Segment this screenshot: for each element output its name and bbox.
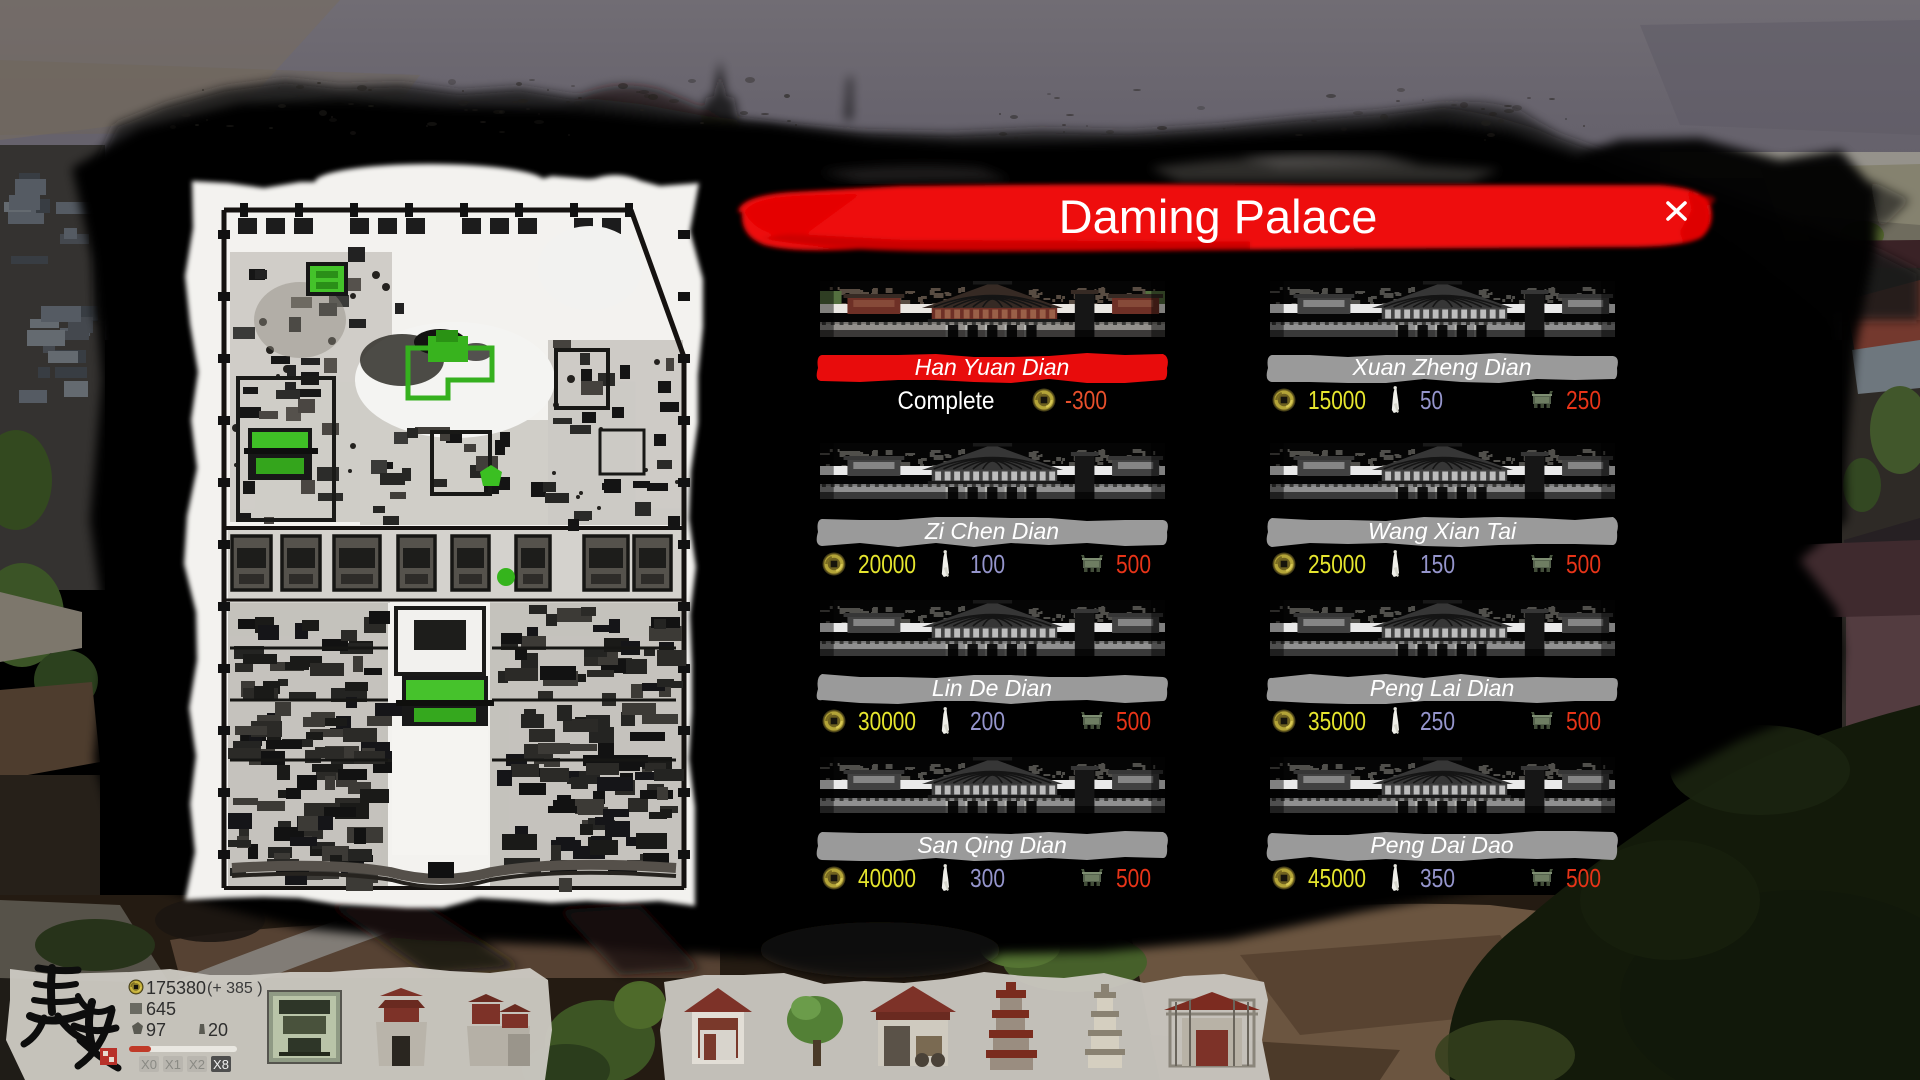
svg-text:500: 500 <box>1116 863 1151 893</box>
svg-text:100: 100 <box>970 549 1005 579</box>
svg-text:97: 97 <box>146 1020 166 1040</box>
svg-text:X1: X1 <box>165 1057 181 1072</box>
svg-text:350: 350 <box>1420 863 1455 893</box>
svg-text:Complete: Complete <box>898 387 995 415</box>
svg-text:Han Yuan Dian: Han Yuan Dian <box>915 354 1070 380</box>
svg-text:35000: 35000 <box>1308 706 1366 736</box>
svg-text:15000: 15000 <box>1308 385 1366 415</box>
svg-text:(+ 385 ): (+ 385 ) <box>207 980 263 997</box>
svg-text:Zi Chen Dian: Zi Chen Dian <box>924 518 1059 544</box>
svg-text:20: 20 <box>208 1020 228 1040</box>
svg-text:Wang Xian Tai: Wang Xian Tai <box>1368 518 1517 544</box>
svg-text:500: 500 <box>1116 706 1151 736</box>
svg-text:500: 500 <box>1116 549 1151 579</box>
svg-text:20000: 20000 <box>858 549 916 579</box>
svg-text:250: 250 <box>1566 385 1601 415</box>
svg-text:X0: X0 <box>141 1057 157 1072</box>
svg-text:50: 50 <box>1420 385 1443 415</box>
svg-text:500: 500 <box>1566 549 1601 579</box>
svg-text:Peng Lai Dian: Peng Lai Dian <box>1370 675 1515 701</box>
svg-text:25000: 25000 <box>1308 549 1366 579</box>
svg-text:500: 500 <box>1566 706 1601 736</box>
svg-text:500: 500 <box>1566 863 1601 893</box>
svg-text:45000: 45000 <box>1308 863 1366 893</box>
svg-text:250: 250 <box>1420 706 1455 736</box>
svg-text:30000: 30000 <box>858 706 916 736</box>
svg-text:200: 200 <box>970 706 1005 736</box>
svg-text:Xuan Zheng Dian: Xuan Zheng Dian <box>1351 354 1531 380</box>
svg-text:Daming Palace: Daming Palace <box>1059 190 1378 243</box>
svg-text:300: 300 <box>970 863 1005 893</box>
svg-text:Lin De Dian: Lin De Dian <box>932 675 1052 701</box>
svg-text:-300: -300 <box>1065 385 1107 415</box>
svg-text:175380: 175380 <box>146 978 206 998</box>
svg-text:Peng Dai Dao: Peng Dai Dao <box>1370 832 1513 858</box>
svg-text:X8: X8 <box>213 1057 229 1072</box>
svg-text:40000: 40000 <box>858 863 916 893</box>
svg-text:150: 150 <box>1420 549 1455 579</box>
svg-text:645: 645 <box>146 999 176 1019</box>
svg-text:X2: X2 <box>189 1057 205 1072</box>
svg-text:San Qing Dian: San Qing Dian <box>917 832 1067 858</box>
